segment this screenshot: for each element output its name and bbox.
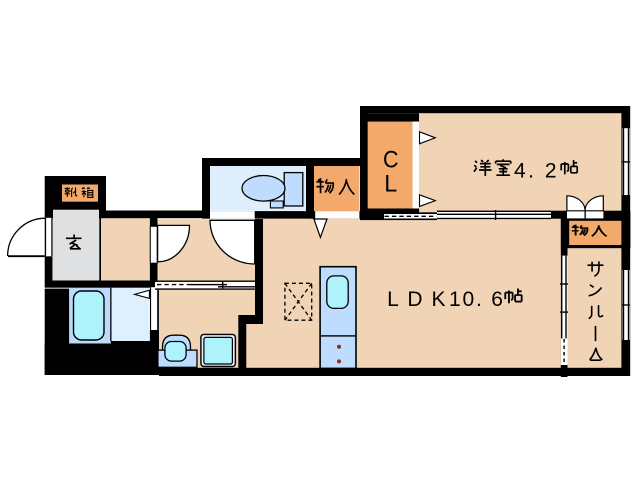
svg-text:C: C <box>383 147 399 174</box>
svg-text:L: L <box>387 288 399 311</box>
svg-text:K: K <box>431 288 445 311</box>
svg-text:10. 6: 10. 6 <box>449 288 505 311</box>
svg-text:4. 2: 4. 2 <box>514 159 559 182</box>
svg-text:D: D <box>407 288 422 311</box>
svg-text:L: L <box>384 171 397 198</box>
